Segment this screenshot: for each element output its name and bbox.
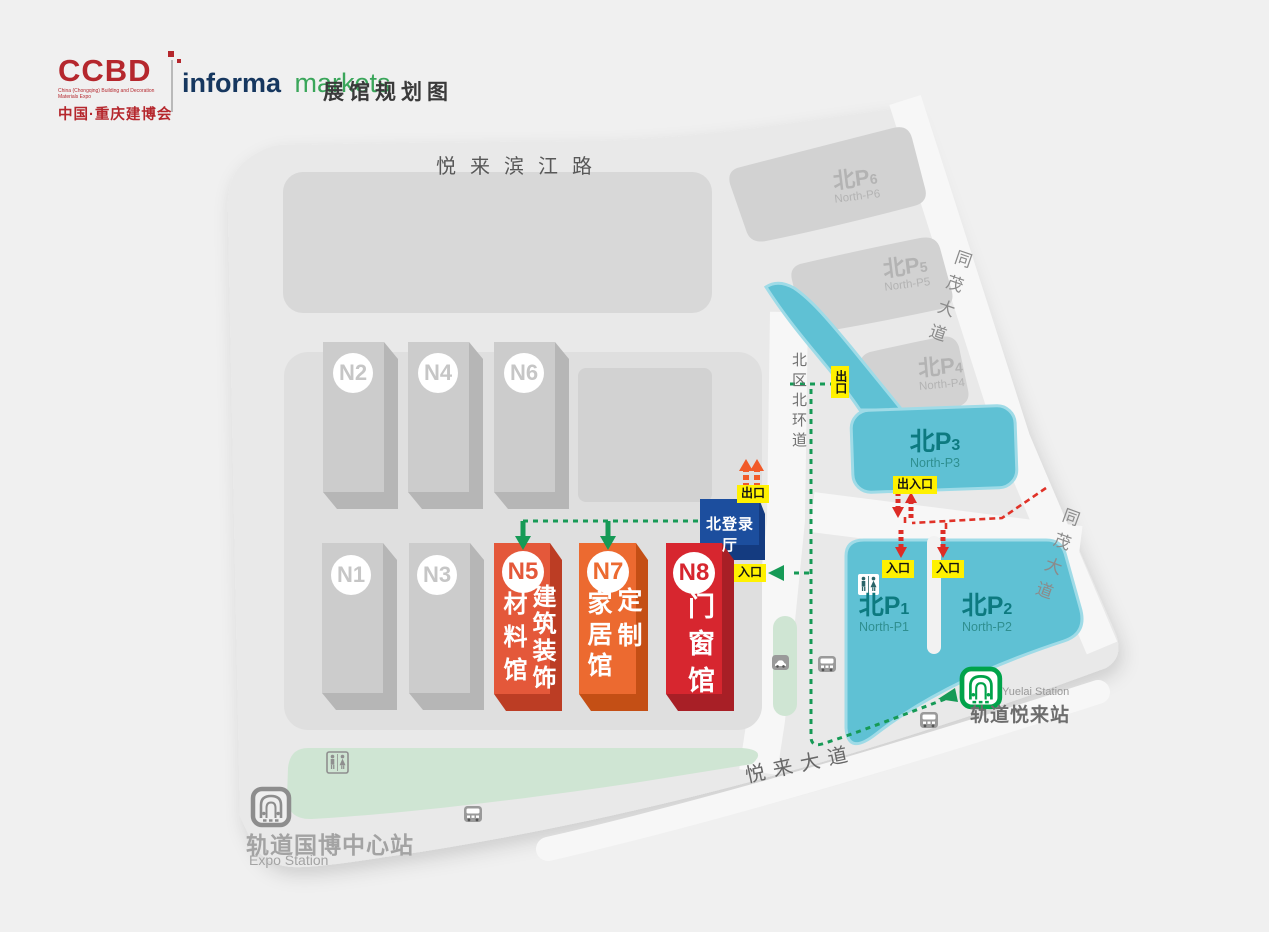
gate-entrance-p2: 入口 <box>932 560 964 578</box>
brand-word-informa: informa <box>182 68 281 98</box>
gate-entrance-p1: 入口 <box>882 560 914 578</box>
hall-badge-n6: N6 <box>504 353 544 393</box>
logo-acronym-text: CCBD <box>58 53 152 88</box>
yuelai-station-name-cn: 轨道悦来站 <box>970 700 1070 727</box>
venue-map-canvas <box>0 0 1269 932</box>
parking-p3-label: 北P3 North-P3 <box>892 430 978 470</box>
gate-registration-entrance: 入口 <box>734 564 766 582</box>
yuelai-station-name-en: Yuelai Station <box>1002 686 1069 698</box>
parking-p1-p2-divider <box>927 536 941 654</box>
parking-name: 北P <box>910 428 952 456</box>
logo-dot <box>177 59 181 63</box>
parking-p2-label: 北P2 North-P2 <box>944 594 1030 634</box>
hall-badge-n3: N3 <box>417 555 457 595</box>
hall-id: N1 <box>337 562 365 588</box>
logo-dot <box>168 51 174 57</box>
hall-id: N4 <box>424 360 452 386</box>
parking-subtitle: North-P3 <box>892 457 978 470</box>
parking-number: 1 <box>900 601 909 618</box>
road-label-north-ring: 北区北环道 <box>788 352 809 452</box>
parking-number: 2 <box>1003 601 1012 618</box>
registration-hall-label: 北登录厅 <box>700 513 760 555</box>
hall-badge-n4: N4 <box>418 353 458 393</box>
logo-tagline: China (Chongqing) Building and Decoratio… <box>58 88 166 100</box>
expo-station-name-en: Expo Station <box>249 852 328 868</box>
hall-n5-name-left: 材料馆 <box>495 591 530 690</box>
gate-exit-entrance-p3: 出入口 <box>893 476 937 494</box>
hall-id: N8 <box>679 559 710 587</box>
parking-subtitle: North-P1 <box>841 621 927 634</box>
parking-name: 北P <box>917 353 956 381</box>
parking-number: 3 <box>951 437 960 454</box>
hall-id: N2 <box>339 360 367 386</box>
hall-badge-n2: N2 <box>333 353 373 393</box>
parking-number: 4 <box>954 359 963 376</box>
road-label-yuelai-binjiang: 悦来滨江路 <box>436 150 606 179</box>
bus-stop-icon <box>464 806 482 822</box>
ccbd-logo: CCBD China (Chongqing) Building and Deco… <box>58 55 170 124</box>
parking-p1-label: 北P1 North-P1 <box>841 594 927 634</box>
hall-badge-n8: N8 <box>673 552 715 594</box>
logo-chinese-name: 中国·重庆建博会 <box>58 103 170 124</box>
hall-badge-n1: N1 <box>331 555 371 595</box>
hall-id: N6 <box>510 360 538 386</box>
parking-subtitle: North-P2 <box>944 621 1030 634</box>
parking-p4-label: 北P4 North-P4 <box>897 352 986 395</box>
parking-name: 北P <box>859 592 901 620</box>
hall-n7-name-left: 家居馆 <box>580 590 616 683</box>
hall-id: N7 <box>593 558 624 586</box>
annex-block <box>578 368 712 502</box>
hall-id: N5 <box>508 558 539 586</box>
gate-exit-north: 出口 <box>831 366 849 398</box>
hall-n8-name: 门窗馆 <box>680 592 719 703</box>
hall-id: N3 <box>423 562 451 588</box>
taxi-stand-icon <box>772 655 789 670</box>
venue-map-page: CCBD China (Chongqing) Building and Deco… <box>0 0 1269 932</box>
parking-number: 5 <box>919 258 929 275</box>
parking-name: 北P <box>962 592 1004 620</box>
gate-registration-exit: 出口 <box>737 485 769 503</box>
riverside-block <box>283 172 712 313</box>
metro-station-icon <box>253 789 289 825</box>
bus-stop-icon <box>920 712 938 728</box>
bus-stop-icon <box>818 656 836 672</box>
page-title: 展馆规划图 <box>323 76 453 106</box>
parking-number: 6 <box>869 170 879 187</box>
header-divider <box>171 60 173 112</box>
